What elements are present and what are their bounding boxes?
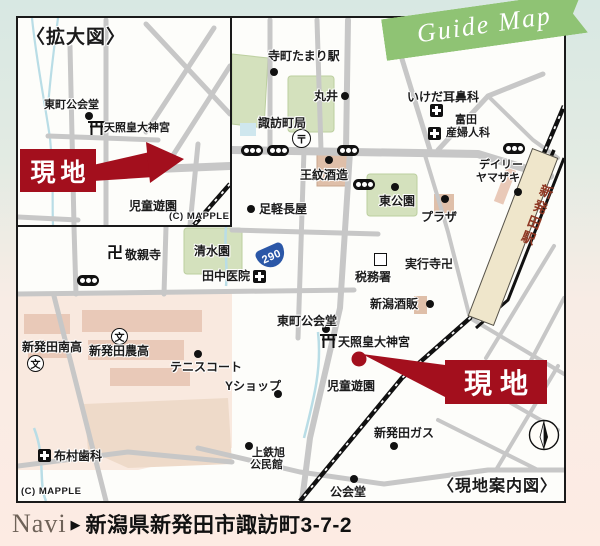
inset-label-shrine: 天照皇大神宮 — [104, 123, 170, 135]
inset-copyright: (C) MAPPLE — [169, 212, 229, 222]
poi-dot-daily-yamazaki — [514, 188, 522, 196]
poi-dot-higashi-koen — [391, 183, 399, 191]
navi-label: Navi — [12, 509, 67, 539]
poi-dot-shibata-gas — [390, 442, 398, 450]
poi-dot-plaza — [441, 195, 449, 203]
school-icon-noko: 文 — [111, 328, 128, 345]
poi-label-suwacho-post: 諏訪町局 — [258, 117, 306, 130]
traffic-light-icon — [337, 145, 359, 156]
inset-waterways — [32, 18, 58, 225]
poi-label-marui: 丸井 — [314, 90, 338, 103]
poi-label-jikkoji: 実行寺卍 — [405, 258, 453, 271]
traffic-light-icon — [241, 145, 263, 156]
poi-label-shibata-noko: 新発田農高 — [89, 345, 149, 358]
inset-title: 〈拡大図〉 — [26, 28, 126, 48]
traffic-light-icon — [353, 179, 375, 190]
poi-label-higashimachi-kokaido: 東町公会堂 — [277, 315, 337, 328]
poi-label-kokaido: 公会堂 — [330, 486, 366, 499]
poi-dot-ashigaru — [247, 205, 255, 213]
poi-label-yshop: Yショップ — [225, 380, 281, 393]
poi-label-shibata-nanko: 新発田南高 — [22, 341, 82, 354]
poi-label-omon-shuzo: 王紋酒造 — [300, 169, 348, 182]
site-callout-box: 現地 — [445, 360, 547, 404]
hospital-icon-tanaka — [253, 270, 266, 283]
poi-label-tomita-2: 産婦人科 — [446, 128, 490, 140]
traffic-light-icon — [267, 145, 289, 156]
poi-label-nunomura-shika: 布村歯科 — [54, 450, 102, 463]
poi-label-jido-yuen: 児童遊園 — [327, 380, 375, 393]
poi-label-shimizuen: 清水園 — [194, 245, 230, 258]
navi-address: 新潟県新発田市諏訪町3-7-2 — [86, 509, 353, 539]
poi-label-ikeda-jibika: いけだ耳鼻科 — [407, 91, 479, 104]
torii-icon — [319, 332, 338, 349]
hospital-icon-ikeda — [430, 104, 443, 117]
poi-label-daily-1: デイリー — [479, 160, 523, 172]
hospital-icon-tomita — [428, 127, 441, 140]
inset-label-higashimachi-kokaido: 東町公会堂 — [44, 100, 99, 112]
temple-icon-keishinji: 卍 — [107, 246, 123, 262]
poi-label-tennis-court: テニスコート — [170, 361, 242, 374]
pond — [240, 123, 256, 136]
poi-label-teramachi-tamari: 寺町たまり駅 — [268, 50, 340, 63]
guide-map-canvas: 新発田駅 〒 文 文 卍 290 寺町たまり駅 丸井 いけだ耳鼻科 富田 産婦人… — [16, 16, 566, 503]
inset-map: 〈拡大図〉 東町公会堂 天照皇大神宮 児童遊園 (C) MAPPLE 現地 — [18, 18, 232, 227]
map-copyright: (C) MAPPLE — [21, 487, 81, 497]
school-icon-nanko: 文 — [27, 355, 44, 372]
post-office-icon: 〒 — [292, 129, 311, 148]
poi-dot-marui — [341, 92, 349, 100]
compass: N — [525, 418, 563, 432]
poi-label-kamitetsu-1: 上鉄旭 — [252, 448, 285, 460]
poi-dot-tennis — [194, 350, 202, 358]
hospital-icon-nunomura — [38, 449, 51, 462]
traffic-light-icon — [503, 143, 525, 154]
poi-label-tanaka-iin: 田中医院 — [202, 270, 250, 283]
poi-label-plaza: プラザ — [421, 211, 457, 224]
poi-dot-omon — [325, 156, 333, 164]
navi-address-bar: Navi ▶ 新潟県新発田市諏訪町3-7-2 — [12, 504, 352, 544]
poi-label-daily-2: ヤマザキ — [476, 173, 520, 185]
poi-label-keishinji: 敬親寺 — [125, 249, 161, 262]
inset-site-callout-box: 現地 — [20, 149, 96, 192]
poi-label-kamitetsu-2: 公民館 — [250, 460, 283, 472]
map-caption: 〈現地案内図〉 — [438, 479, 557, 496]
poi-label-tomita-1: 富田 — [455, 115, 477, 127]
poi-dot-niigata-shuhan — [426, 300, 434, 308]
tax-office-icon — [374, 253, 387, 266]
poi-label-shibata-gas: 新発田ガス — [374, 427, 434, 440]
poi-label-niigata-shuhan: 新潟酒販 — [370, 298, 418, 311]
compass-rose-icon — [525, 418, 563, 452]
traffic-light-icon — [77, 275, 99, 286]
poi-label-shrine: 天照皇大神宮 — [338, 336, 410, 349]
poi-dot-teramachi — [270, 68, 278, 76]
poi-label-zeimusho: 税務署 — [355, 271, 391, 284]
poi-label-ashigaru-nagaya: 足軽長屋 — [259, 203, 307, 216]
navi-arrow-icon: ▶ — [71, 517, 81, 533]
poi-label-higashi-koen: 東公園 — [379, 195, 415, 208]
poi-dot-kokaido — [350, 475, 358, 483]
